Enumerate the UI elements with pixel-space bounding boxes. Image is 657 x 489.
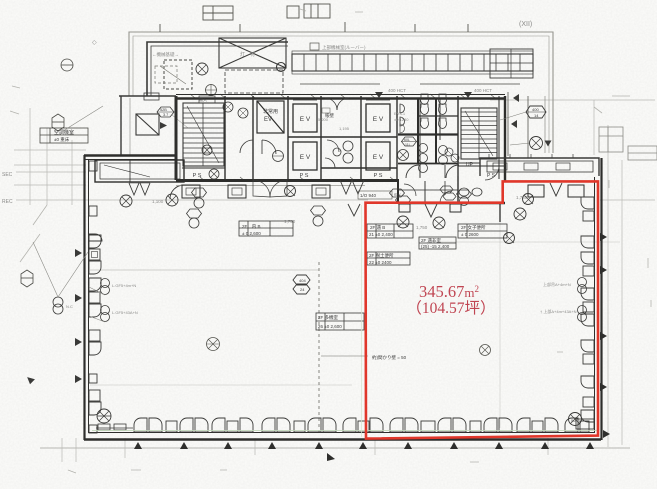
svg-text:P S: P S (193, 173, 202, 179)
svg-text:2F 女子便所: 2F 女子便所 (461, 224, 486, 231)
svg-text:2F 多機室: 2F 多機室 (318, 314, 339, 321)
svg-text:404: 404 (299, 278, 306, 283)
svg-text:E V: E V (300, 154, 311, 161)
svg-text:3.7: 3.7 (163, 113, 168, 117)
svg-text:400: 400 (532, 107, 539, 112)
svg-text:SEC: SEC (2, 172, 13, 178)
svg-text:E V: E V (300, 116, 311, 123)
svg-text:2F 遇非室: 2F 遇非室 (421, 237, 442, 244)
svg-text:±0 重床: ±0 重床 (54, 136, 70, 143)
svg-text:± 0 2,600: ± 0 2,600 (242, 231, 261, 236)
svg-text:上部機械室(ルーバー): 上部機械室(ルーバー) (322, 44, 366, 51)
svg-text:345.67m2: 345.67m2 (419, 282, 479, 301)
svg-text:1,195: 1,195 (339, 126, 350, 131)
svg-text:（104.57坪）: （104.57坪） (406, 299, 495, 317)
svg-text:1/O 940: 1/O 940 (360, 193, 377, 198)
svg-text:REC: REC (2, 199, 13, 205)
svg-text:←機械基礎→: ←機械基礎→ (152, 51, 179, 58)
svg-text:1,750: 1,750 (284, 219, 296, 224)
svg-text:21 ±0 2,400: 21 ±0 2,400 (369, 232, 393, 237)
svg-text:2F 内 B: 2F 内 B (242, 223, 261, 230)
svg-text:P S: P S (300, 173, 309, 179)
svg-text:EV: EV (264, 117, 272, 123)
svg-text:1,780: 1,780 (516, 195, 528, 200)
svg-text:P S: P S (374, 173, 383, 179)
svg-text:上部吊A+4m+N: 上部吊A+4m+N (543, 281, 571, 287)
svg-text:26 ±0 2,600: 26 ±0 2,600 (318, 324, 342, 329)
svg-text:灯 特: 灯 特 (240, 51, 255, 58)
svg-text:11L: 11L (405, 143, 411, 147)
svg-text:N.C: N.C (66, 304, 73, 309)
svg-text:14: 14 (534, 113, 539, 118)
svg-text:24: 24 (300, 287, 305, 292)
svg-text:52B: 52B (160, 108, 167, 112)
svg-text:1,750: 1,750 (416, 225, 428, 230)
svg-text:1,100: 1,100 (152, 199, 164, 204)
svg-text:非常用: 非常用 (263, 108, 278, 115)
svg-text:± 0 2600: ± 0 2600 (461, 232, 479, 237)
svg-text:物入: 物入 (199, 96, 207, 102)
svg-text:60L: 60L (404, 138, 410, 142)
svg-text:(25) -15 2,400: (25) -15 2,400 (421, 244, 450, 249)
svg-text:E V: E V (373, 116, 384, 123)
svg-text:22 ±0 2400: 22 ±0 2400 (369, 260, 392, 265)
svg-text:2F 樹土便所: 2F 樹土便所 (369, 252, 394, 259)
svg-text:(XII): (XII) (519, 21, 532, 28)
svg-text:◇: ◇ (92, 40, 97, 46)
svg-text:400 HCT: 400 HCT (474, 88, 492, 93)
svg-text:L.GF5+4m+N: L.GF5+4m+N (112, 283, 136, 288)
svg-text:±0 1280: ±0 1280 (394, 117, 409, 122)
svg-text:400 HCT: 400 HCT (388, 88, 406, 93)
svg-text:L.GF5+43A+N: L.GF5+43A+N (112, 310, 138, 315)
svg-text:約)間かり壁 = 50: 約)間かり壁 = 50 (372, 354, 407, 361)
svg-text:50: 50 (571, 418, 576, 423)
svg-text:† 上部A+4m+43A+N: † 上部A+4m+43A+N (540, 308, 577, 314)
svg-text:E V: E V (373, 154, 384, 161)
svg-text:SW: SW (394, 192, 401, 197)
